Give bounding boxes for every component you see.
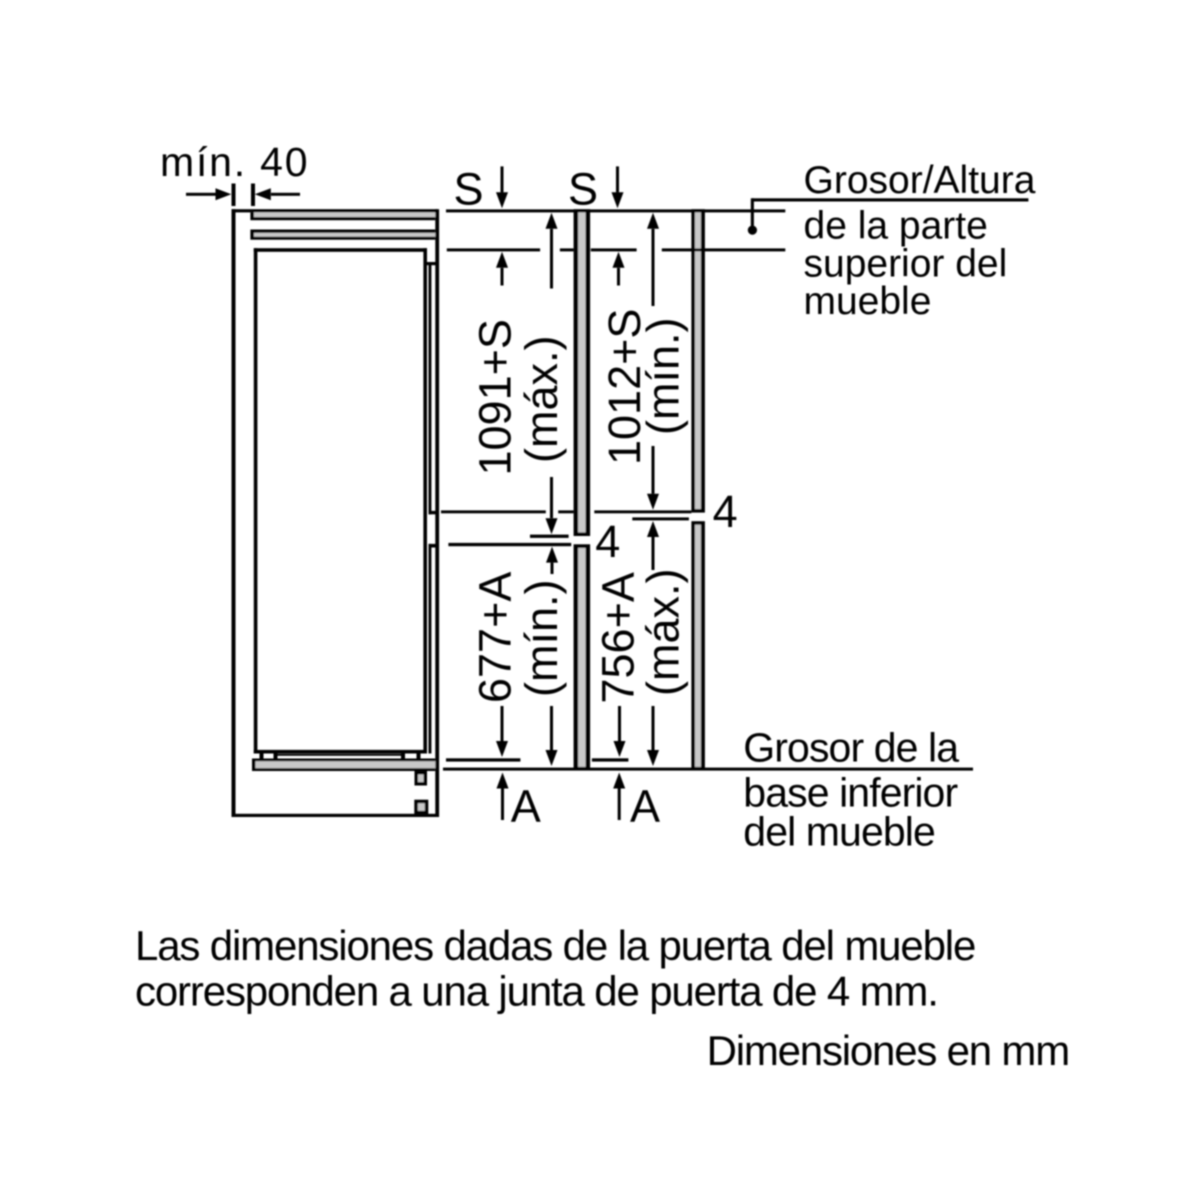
svg-text:del mueble: del mueble: [743, 809, 935, 855]
svg-text:Dimensiones en mm: Dimensiones en mm: [707, 1027, 1069, 1074]
svg-text:corresponden a una junta de pu: corresponden a una junta de puerta de 4 …: [135, 968, 938, 1015]
svg-text:(máx.): (máx.): [638, 569, 689, 697]
svg-text:677+A: 677+A: [470, 572, 521, 703]
svg-text:1091+S: 1091+S: [470, 319, 521, 475]
svg-text:de la parte: de la parte: [804, 205, 988, 248]
svg-text:4: 4: [595, 516, 620, 567]
svg-text:(mín.): (mín.): [516, 580, 567, 698]
svg-text:Las dimensiones dadas de la pu: Las dimensiones dadas de la puerta del m…: [135, 922, 975, 969]
svg-text:A: A: [511, 781, 541, 832]
svg-text:A: A: [630, 781, 660, 832]
svg-text:Grosor/Altura: Grosor/Altura: [804, 159, 1036, 202]
svg-text:Grosor de la: Grosor de la: [743, 725, 959, 771]
svg-text:mín. 40: mín. 40: [160, 139, 309, 185]
svg-text:mueble: mueble: [804, 280, 932, 323]
svg-text:756+A: 756+A: [593, 572, 644, 703]
svg-text:(mín.): (mín.): [638, 318, 689, 436]
svg-text:4: 4: [713, 486, 738, 537]
svg-text:(máx.): (máx.): [516, 336, 567, 464]
svg-text:S: S: [454, 164, 484, 215]
svg-text:S: S: [568, 164, 598, 215]
